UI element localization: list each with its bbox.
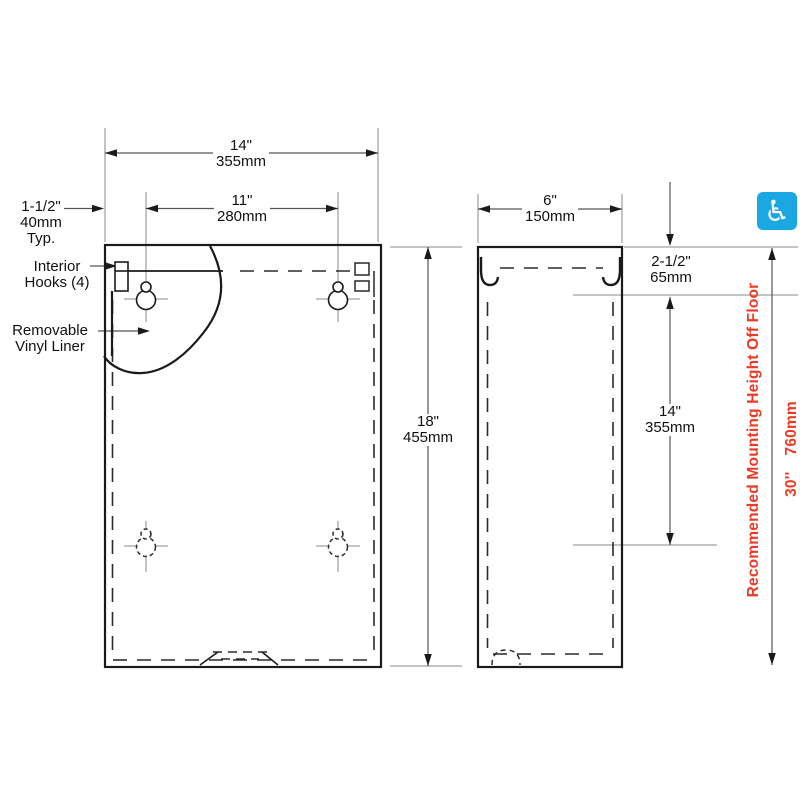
accessibility-icon: ♿ [757,192,797,230]
front-view [104,245,381,667]
callout-interior-hooks: Interior Hooks (4) [24,259,89,291]
dim-depth: 6" 150mm [522,193,578,225]
callout-vinyl-liner: Removable Vinyl Liner [12,323,88,355]
interior-hook-right [355,263,374,297]
mounting-height-value: 30''760mm [783,401,800,497]
wheelchair-glyph: ♿ [764,197,790,226]
keyhole-lower-right [329,529,348,557]
keyhole-upper-right [329,282,348,310]
interior-hook-left [115,262,128,291]
dim-top-offset: 2-1/2" 65mm [650,254,692,286]
side-bottom-detail [492,650,520,665]
keyhole-lower-left [137,529,156,557]
dim-hole-spacing-horizontal: 11" 280mm [214,193,270,225]
mounting-height-note: Recommended Mounting Height Off Floor [745,283,763,598]
dim-front-width: 14" 355mm [213,138,269,170]
front-bottom-detail [200,652,278,665]
technical-drawing-page: 14" 355mm 11" 280mm 1-1/2" 40mm Typ. Int… [0,0,800,800]
dim-front-height: 18" 455mm [400,414,456,446]
dim-edge-offset: 1-1/2" 40mm Typ. [20,199,62,247]
side-view [478,247,622,667]
dimension-drawing [0,0,800,800]
side-view-outline [478,247,622,667]
mounting-hooks-side [481,257,620,285]
front-view-hidden-outline [113,271,375,660]
side-view-hidden-outline [488,268,614,654]
keyhole-upper-left [137,282,156,310]
dim-hole-spacing-vertical: 14" 355mm [642,404,698,436]
